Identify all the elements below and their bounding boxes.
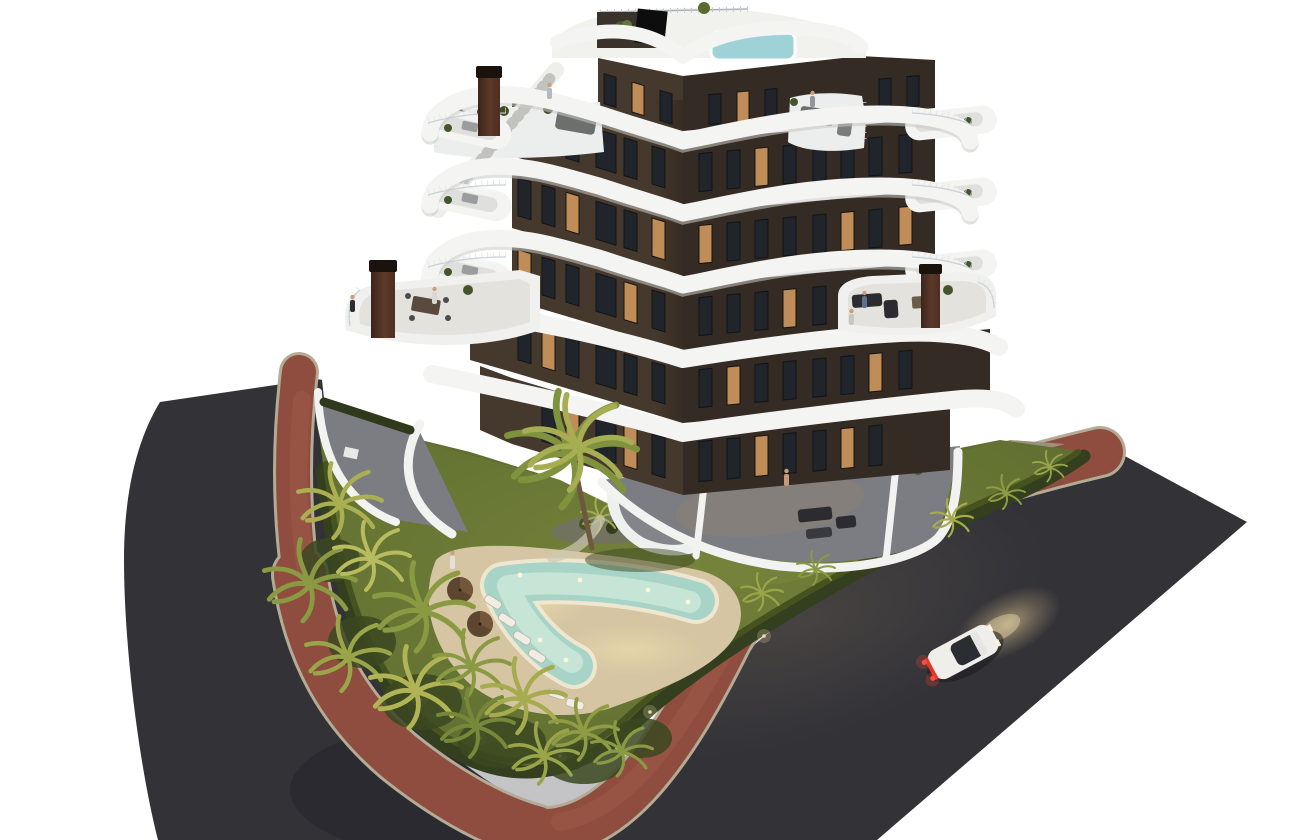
chimney xyxy=(369,260,397,338)
person xyxy=(862,291,867,308)
person xyxy=(849,309,854,325)
scene-render xyxy=(0,0,1290,840)
roof-plant xyxy=(698,2,710,14)
person xyxy=(784,469,789,486)
person xyxy=(810,91,815,107)
chimney xyxy=(919,264,942,328)
person xyxy=(450,551,455,569)
render-canvas xyxy=(0,0,1290,840)
person xyxy=(547,83,552,99)
person xyxy=(432,287,437,304)
chimney xyxy=(476,66,502,136)
person xyxy=(350,295,355,312)
podium-terrace-right xyxy=(838,272,996,335)
